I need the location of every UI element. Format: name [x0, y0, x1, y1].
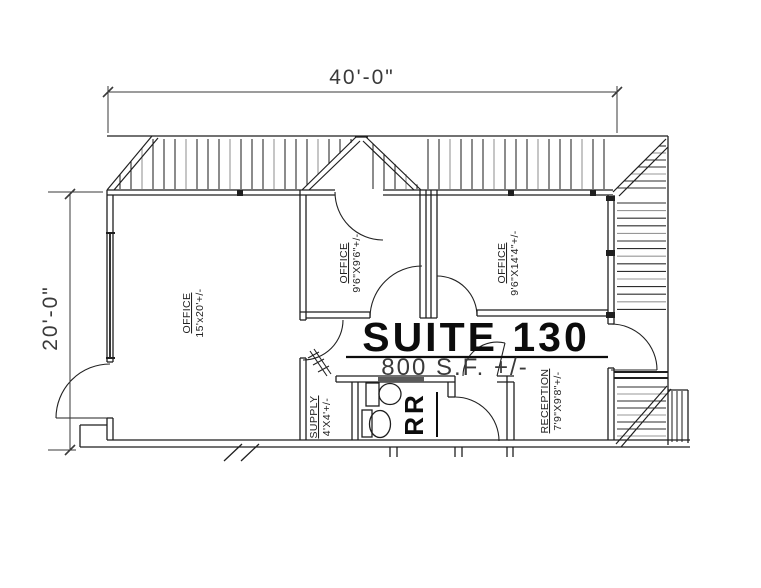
dimension-height-label: 20'-0"	[39, 285, 62, 351]
door-arc-entry	[611, 324, 657, 370]
hatch-top-band	[120, 139, 604, 189]
door-arc-office-right	[437, 276, 477, 316]
room-label-supply: SUPPLY	[308, 395, 320, 438]
floor-plan-svg: 40'-0" 20'-0" SUITE 130 800 S.F. +/- OFF…	[0, 0, 761, 588]
door-arc-vestibule	[335, 192, 383, 240]
dimension-width-label: 40'-0"	[329, 66, 395, 89]
room-size-office-large: 15'x20'+/-	[194, 288, 206, 337]
room-label-office-middle: OFFICE	[338, 243, 350, 284]
room-label-office-right: OFFICE	[496, 243, 508, 284]
toilet-tank-icon	[362, 410, 372, 437]
floor-plan-page: 40'-0" 20'-0" SUITE 130 800 S.F. +/- OFF…	[0, 0, 761, 588]
stairs-lower-treads	[617, 387, 666, 436]
room-size-supply: 4'X4'+/-	[321, 398, 333, 437]
left-dimension: 20'-0"	[39, 189, 103, 455]
sink-basin-icon	[379, 384, 401, 405]
sink-icon	[366, 383, 379, 406]
room-label-office-large: OFFICE	[181, 293, 193, 334]
room-size-reception: 7'9"X9'8"+/-	[552, 371, 564, 430]
door-arc-exterior-left	[56, 364, 110, 418]
door-arc-office-middle	[370, 266, 422, 318]
hatch-right-corner	[617, 146, 666, 188]
top-dimension: 40'-0"	[103, 66, 622, 133]
room-size-office-middle: 9'6"X9'6"+/-	[351, 233, 363, 292]
stairs-outer-strip	[672, 391, 682, 442]
room-size-office-right: 9'6"X14'4"+/-	[509, 230, 521, 296]
room-label-restroom: RR	[399, 392, 429, 436]
restroom-fixtures	[362, 383, 401, 438]
stairs-upper-treads	[617, 203, 666, 309]
room-label-reception: RECEPTION	[539, 369, 551, 434]
door-arc-restroom	[455, 397, 499, 441]
supply-door-leaf	[308, 349, 331, 376]
suite-area-label: 800 S.F. +/-	[381, 354, 528, 381]
door-arc-office-large	[303, 320, 343, 360]
band-diagonals	[107, 136, 671, 447]
